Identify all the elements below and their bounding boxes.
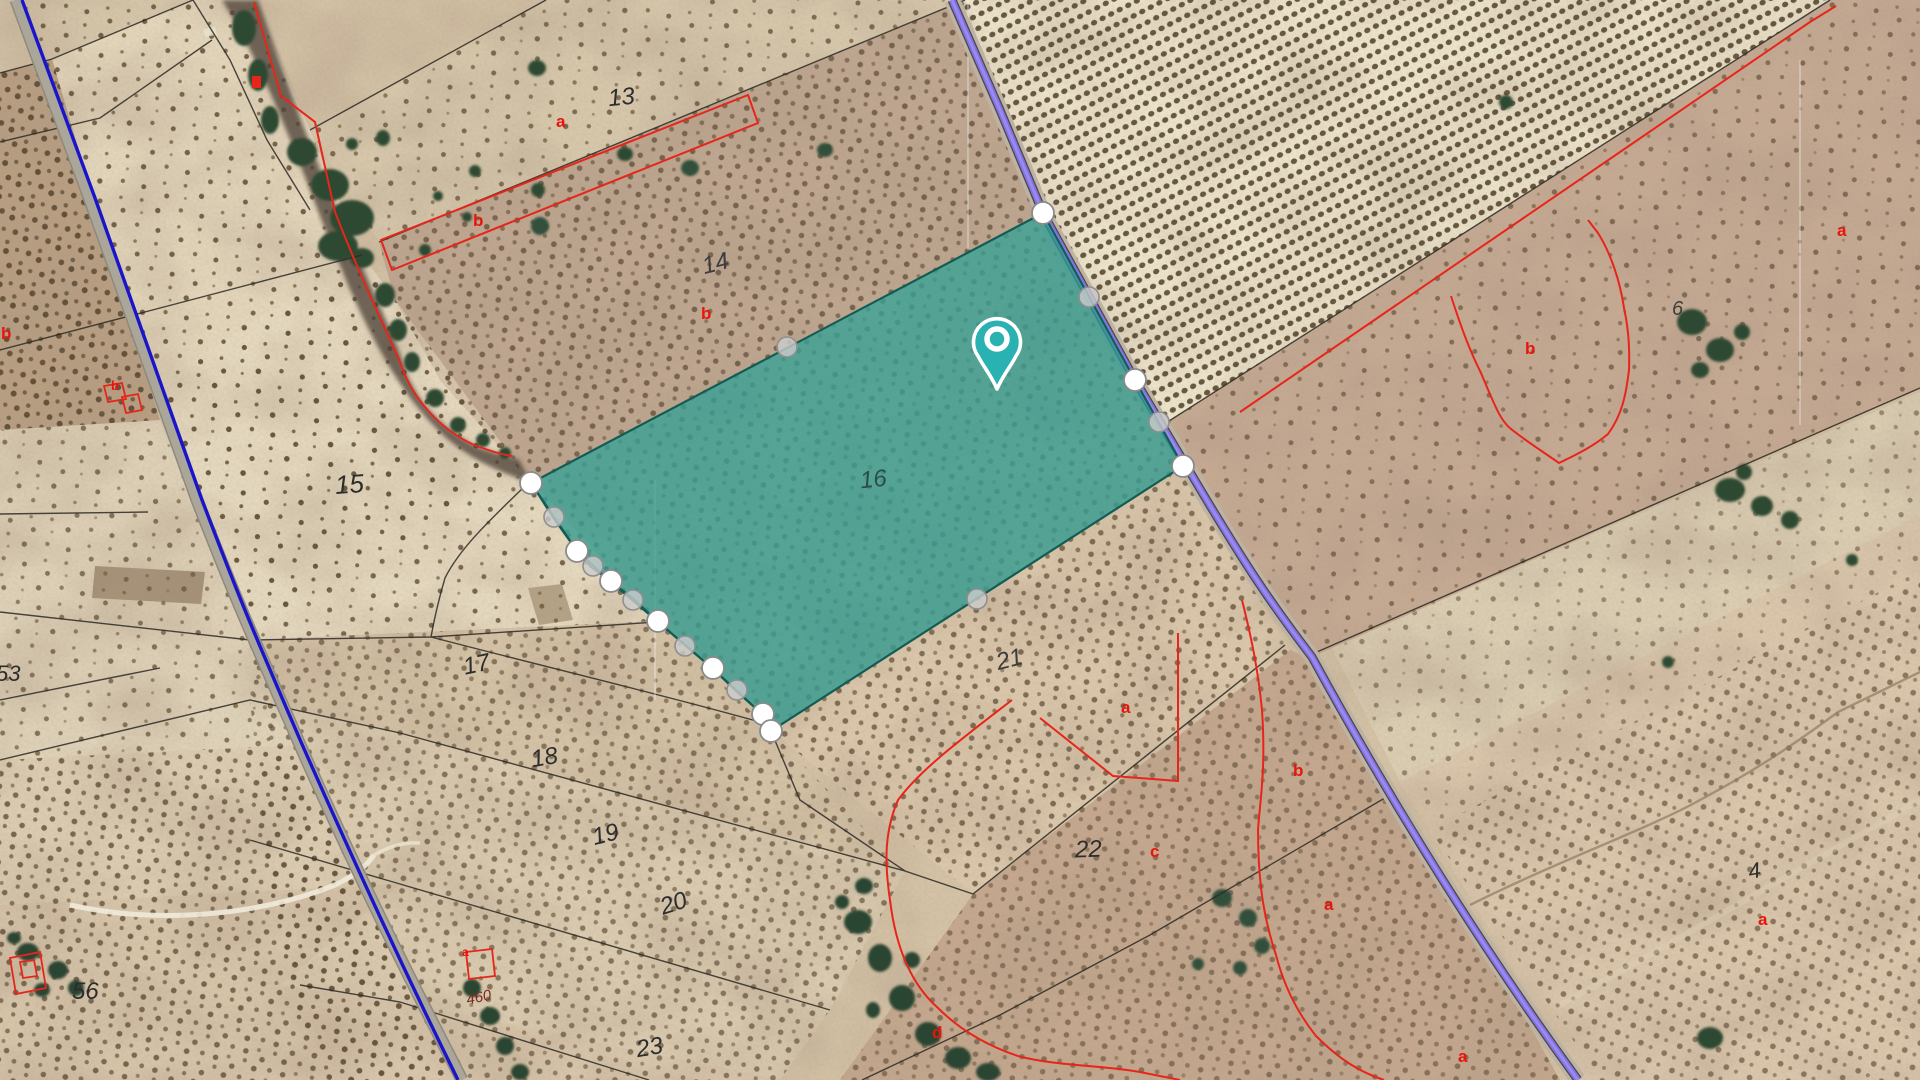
svg-text:b: b (473, 211, 483, 230)
svg-text:b: b (1293, 761, 1303, 780)
svg-text:b: b (701, 304, 711, 323)
svg-text:b: b (111, 378, 119, 393)
svg-text:53: 53 (0, 661, 21, 686)
svg-text:a: a (1324, 895, 1334, 914)
svg-text:b: b (1525, 339, 1535, 358)
svg-text:13: 13 (607, 82, 637, 112)
svg-text:16: 16 (859, 465, 889, 495)
svg-text:d: d (932, 1023, 942, 1042)
svg-text:15: 15 (334, 468, 365, 500)
svg-text:a: a (1758, 910, 1768, 929)
svg-text:a: a (462, 945, 469, 959)
svg-text:b: b (1, 324, 11, 343)
svg-text:a: a (1121, 698, 1131, 717)
svg-text:a: a (1837, 221, 1847, 240)
svg-text:56: 56 (72, 978, 99, 1005)
svg-text:23: 23 (633, 1032, 666, 1064)
svg-text:22: 22 (1074, 836, 1103, 864)
svg-text:a: a (1458, 1047, 1468, 1066)
svg-text:c: c (1150, 842, 1159, 861)
svg-text:6: 6 (1672, 298, 1684, 320)
svg-text:18: 18 (529, 742, 561, 773)
svg-text:a: a (556, 112, 566, 131)
